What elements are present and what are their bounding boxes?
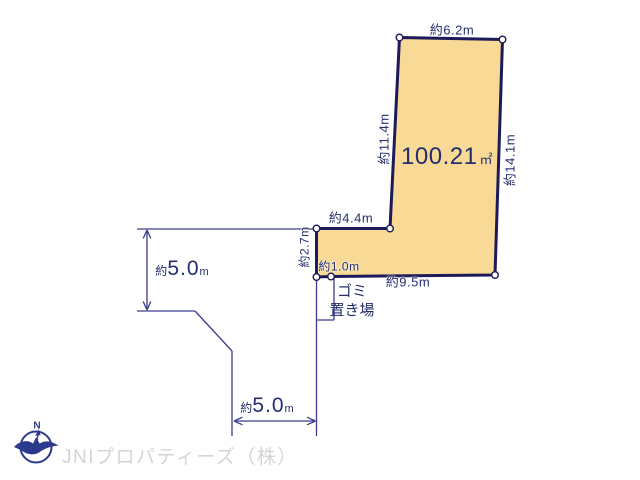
area-label: 100.21㎡ — [401, 143, 493, 171]
dimension-label-bottom-small: 約1.0m — [318, 258, 359, 275]
land-plot-diagram: 約6.2m 約11.4m 約14.1m 100.21㎡ 約4.4m 約2.7m … — [0, 0, 640, 480]
dimension-label-bottom: 約9.5m — [386, 272, 430, 291]
dimension-label-left-upper: 約11.4m — [374, 113, 393, 164]
road-bottom-unit: m — [285, 403, 294, 415]
road-bottom-prefix: 約 — [240, 399, 252, 416]
road-bottom-value: 5.0 — [252, 394, 284, 418]
compass-north-letter: N — [33, 421, 40, 432]
road-width-label-left: 約 5.0 m — [155, 257, 208, 281]
garbage-label-line1: ゴミ — [329, 282, 374, 301]
dimension-label-left-lower: 約2.7m — [296, 226, 313, 267]
road-left-unit: m — [200, 266, 209, 278]
road-width-arrow-bottom — [234, 417, 316, 425]
road-width-arrow-left — [143, 230, 151, 310]
garbage-label-line2: 置き場 — [329, 301, 374, 320]
road-left-prefix: 約 — [155, 262, 167, 279]
area-value: 100.21 — [401, 143, 477, 170]
dimension-label-step: 約4.4m — [329, 208, 373, 227]
area-unit: ㎡ — [479, 152, 493, 167]
company-name: JNIプロパティーズ（株） — [62, 442, 298, 469]
compass-icon — [14, 430, 59, 463]
road-width-label-bottom: 約 5.0 m — [240, 394, 293, 418]
dimension-label-right: 約14.1m — [500, 134, 519, 186]
garbage-area-label: ゴミ 置き場 — [329, 282, 374, 320]
road-left-value: 5.0 — [167, 257, 199, 281]
diagram-canvas — [0, 0, 640, 480]
dimension-label-top: 約6.2m — [430, 20, 474, 39]
